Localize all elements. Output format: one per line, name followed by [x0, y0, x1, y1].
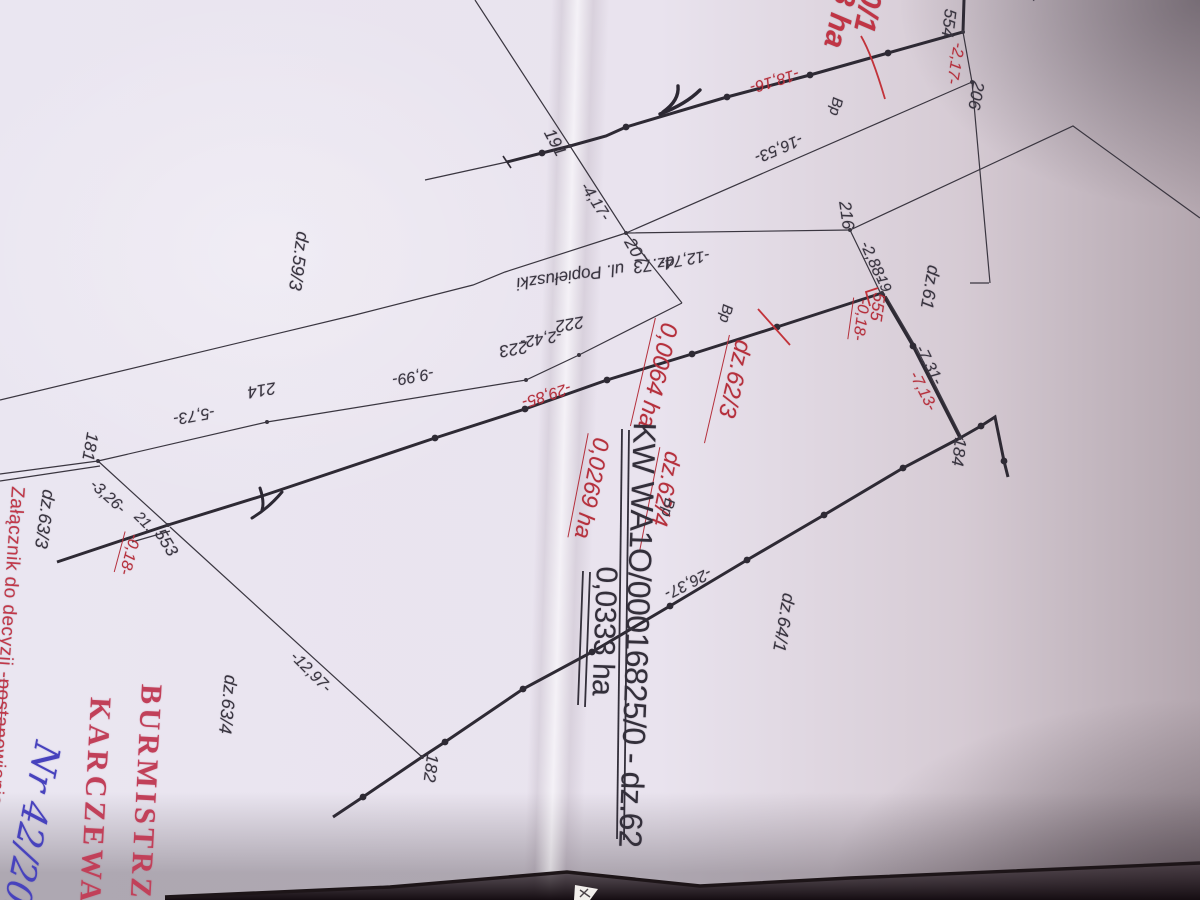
- scanned-survey-map-photo: 5 554 -2,17- 206 Bp -18,16- 0/1 3 ha -16…: [0, 0, 1200, 900]
- photo-edge-overlay: [0, 0, 1200, 900]
